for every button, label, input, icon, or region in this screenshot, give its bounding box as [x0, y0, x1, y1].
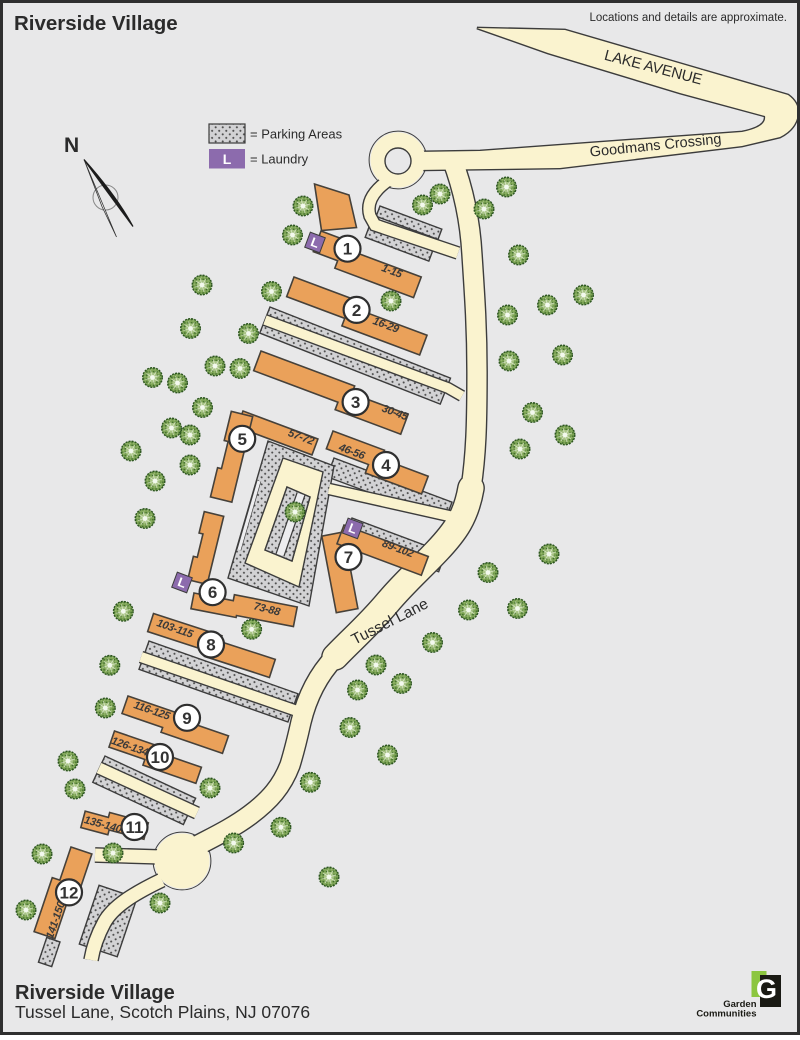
svg-text:1: 1 [343, 240, 352, 259]
svg-text:4: 4 [381, 456, 391, 475]
svg-text:3: 3 [351, 393, 360, 412]
svg-text:5: 5 [237, 430, 246, 449]
svg-text:8: 8 [206, 636, 215, 655]
svg-text:7: 7 [344, 548, 353, 567]
svg-text:= Laundry: = Laundry [250, 152, 309, 167]
svg-text:Communities: Communities [696, 1009, 756, 1020]
svg-text:Tussel Lane, Scotch Plains, NJ: Tussel Lane, Scotch Plains, NJ 07076 [15, 1002, 310, 1022]
svg-text:Riverside Village: Riverside Village [15, 982, 175, 1004]
svg-text:2: 2 [352, 301, 361, 320]
svg-text:11: 11 [126, 818, 144, 837]
svg-text:N: N [64, 134, 79, 157]
svg-text:Locations and details are appr: Locations and details are approximate. [589, 12, 787, 24]
svg-text:6: 6 [208, 583, 217, 602]
svg-text:10: 10 [151, 748, 170, 767]
svg-text:9: 9 [182, 709, 191, 728]
svg-text:L: L [223, 151, 232, 167]
svg-text:G: G [756, 974, 777, 1004]
svg-text:Riverside Village: Riverside Village [14, 12, 178, 35]
svg-text:12: 12 [60, 883, 79, 902]
svg-text:= Parking Areas: = Parking Areas [250, 127, 343, 142]
